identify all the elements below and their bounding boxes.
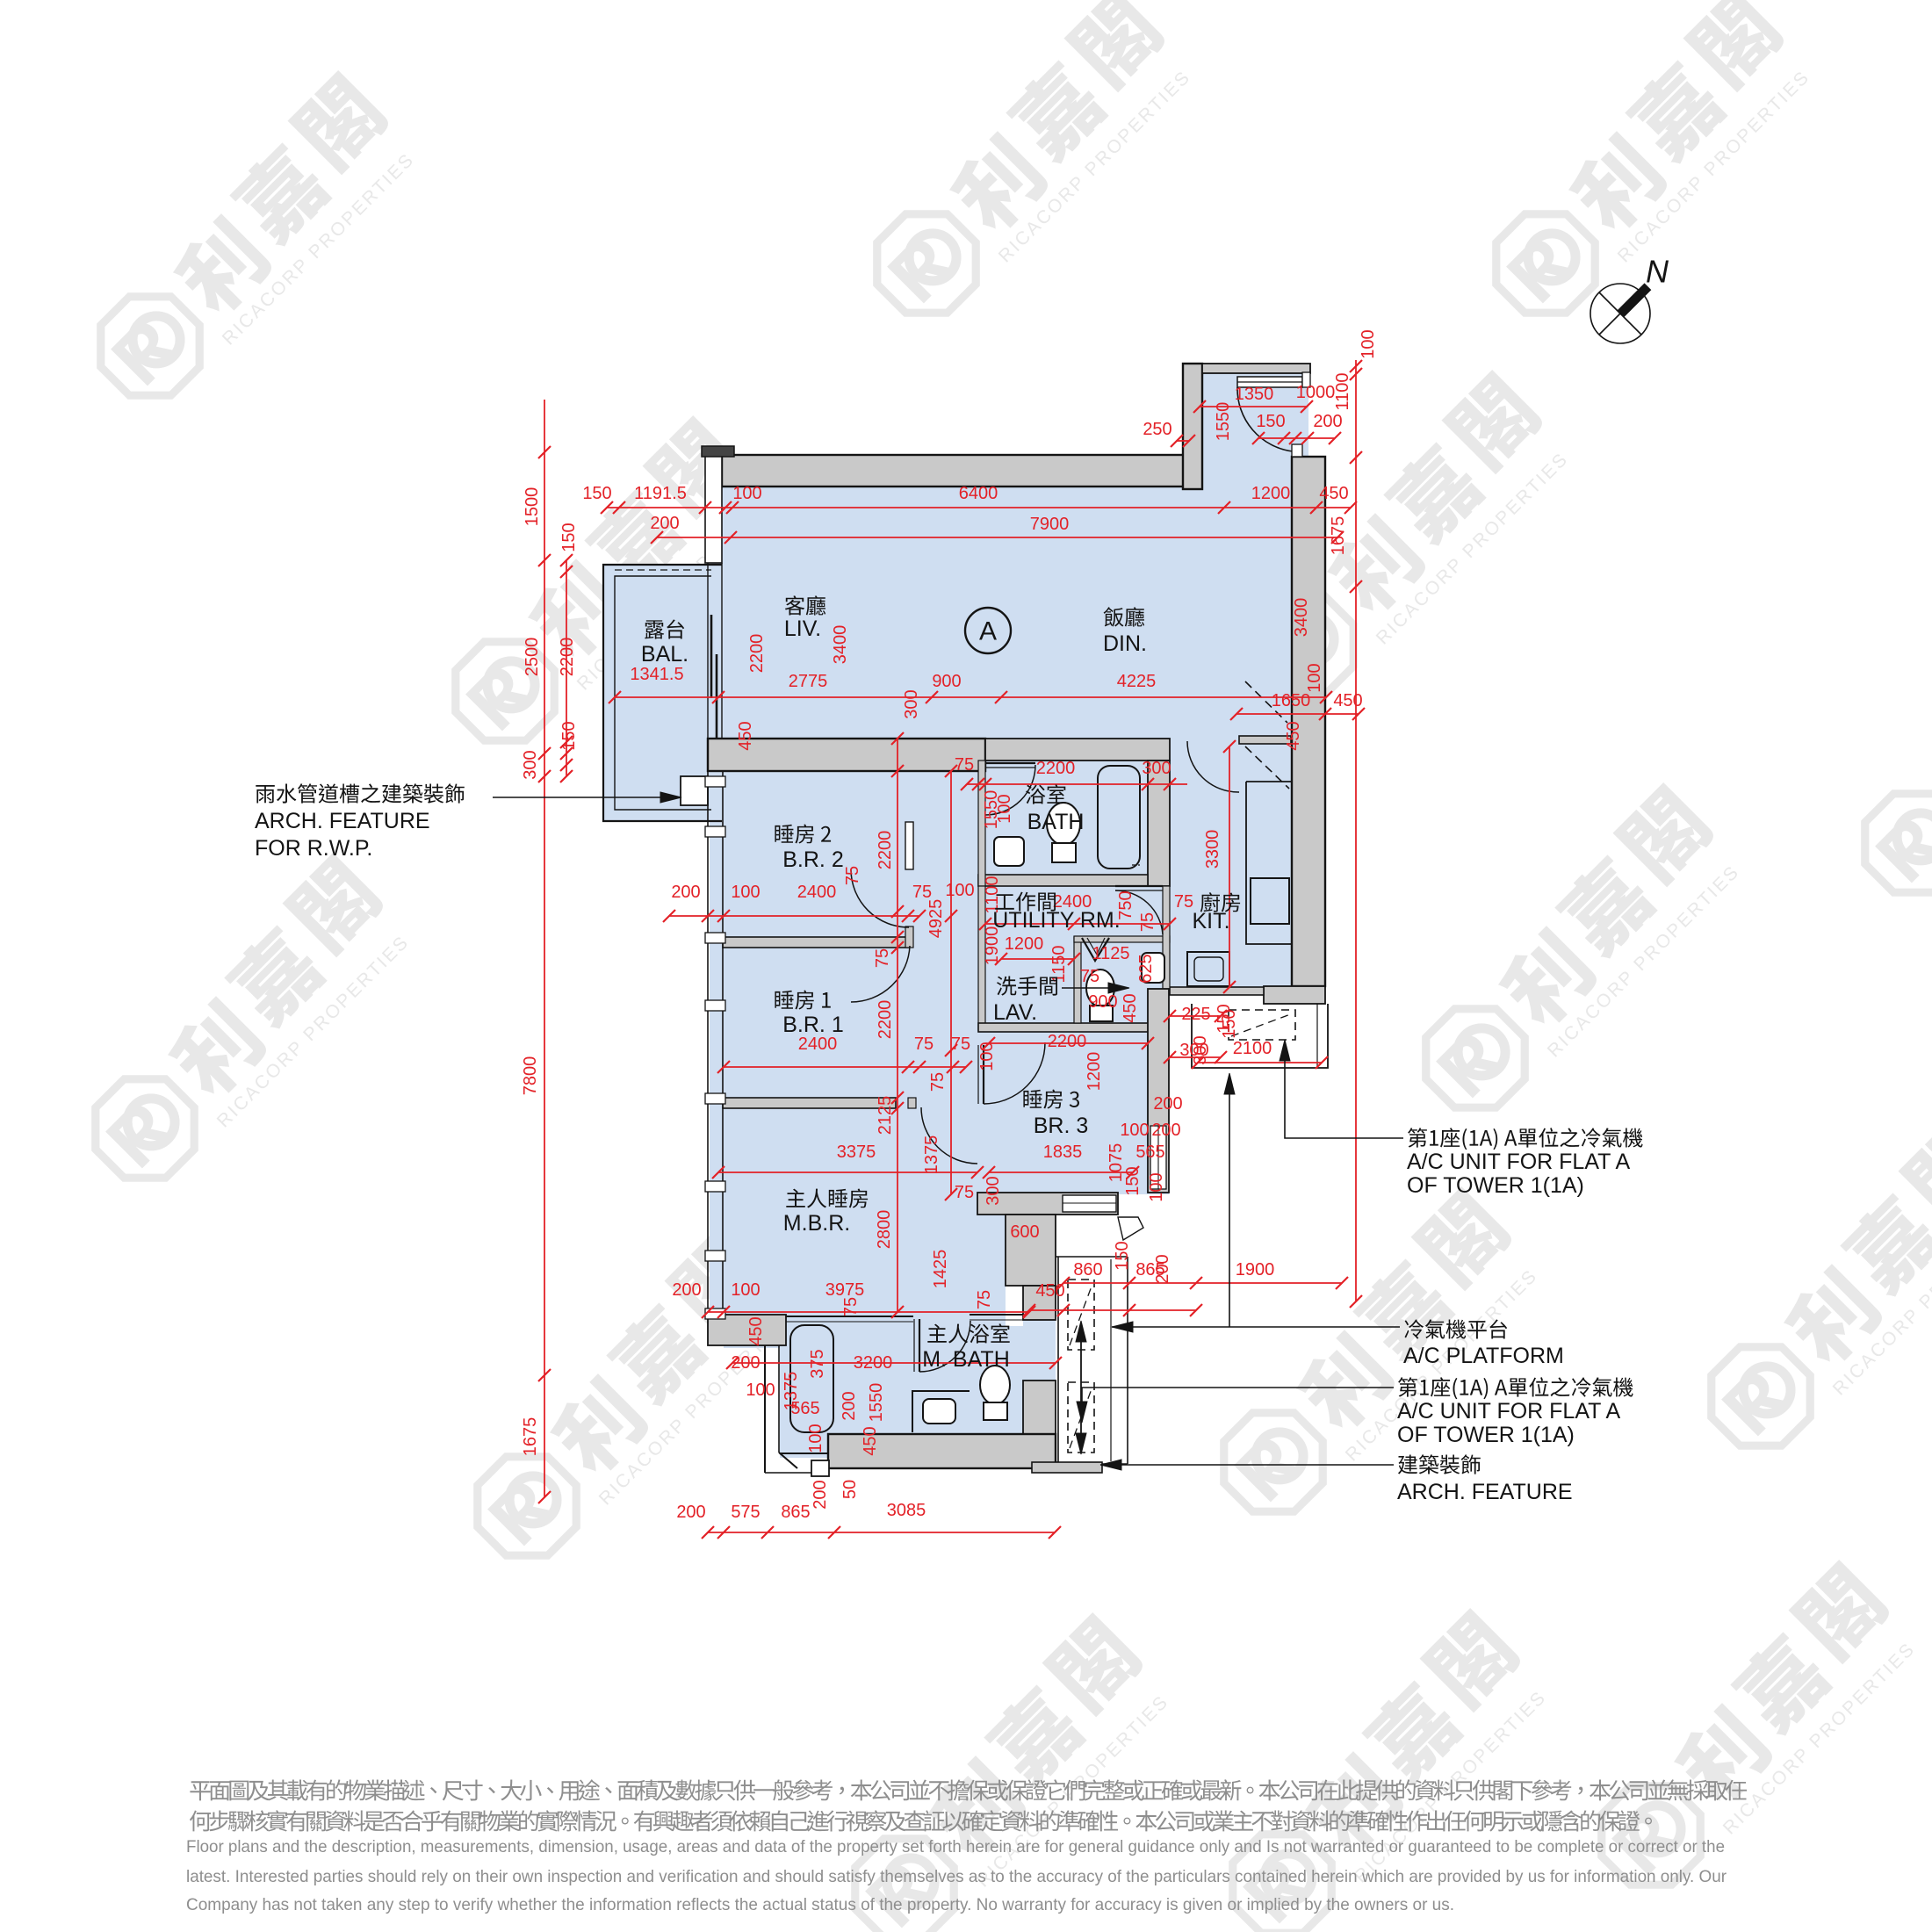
svg-text:2200: 2200 <box>747 634 767 674</box>
svg-text:75: 75 <box>928 1072 948 1092</box>
svg-text:200: 200 <box>811 1480 830 1509</box>
svg-text:450: 450 <box>1035 1281 1064 1301</box>
svg-text:450: 450 <box>1319 484 1348 503</box>
svg-text:100: 100 <box>945 881 974 900</box>
svg-text:4225: 4225 <box>1117 672 1157 691</box>
svg-text:150: 150 <box>1256 412 1285 431</box>
svg-text:M.B.R.: M.B.R. <box>783 1211 850 1236</box>
svg-text:7800: 7800 <box>521 1056 540 1096</box>
svg-text:1200: 1200 <box>1085 1052 1104 1092</box>
svg-text:1500: 1500 <box>523 487 542 527</box>
svg-text:ARCH. FEATURE: ARCH. FEATURE <box>1397 1480 1573 1504</box>
svg-text:BR. 3: BR. 3 <box>1034 1114 1089 1138</box>
svg-text:latest. Interested parties sho: latest. Interested parties should rely o… <box>186 1867 1727 1886</box>
svg-text:300: 300 <box>984 1176 1003 1205</box>
svg-text:200: 200 <box>1151 1121 1180 1140</box>
svg-text:KIT.: KIT. <box>1192 909 1229 934</box>
svg-text:1835: 1835 <box>1043 1143 1083 1162</box>
svg-text:BAL.: BAL. <box>641 642 688 667</box>
svg-text:450: 450 <box>1121 993 1140 1022</box>
svg-text:450: 450 <box>746 1316 766 1345</box>
svg-text:2200: 2200 <box>1048 1032 1087 1051</box>
svg-text:N: N <box>1646 254 1669 290</box>
svg-text:3400: 3400 <box>1292 598 1311 638</box>
svg-text:565: 565 <box>1135 1143 1164 1162</box>
svg-text:200: 200 <box>671 883 700 902</box>
svg-text:1191.5: 1191.5 <box>634 484 687 503</box>
svg-text:B.R. 2: B.R. 2 <box>782 847 843 872</box>
svg-text:450: 450 <box>1284 721 1303 750</box>
svg-text:DIN.: DIN. <box>1103 631 1147 656</box>
svg-text:100: 100 <box>732 484 761 503</box>
svg-text:75: 75 <box>914 1034 934 1054</box>
svg-text:2200: 2200 <box>558 638 577 677</box>
svg-text:900: 900 <box>1088 992 1117 1012</box>
svg-text:860: 860 <box>1073 1260 1102 1280</box>
svg-text:2200: 2200 <box>876 831 895 870</box>
svg-text:FOR R.W.P.: FOR R.W.P. <box>255 836 372 861</box>
svg-text:100: 100 <box>746 1381 775 1400</box>
svg-text:450: 450 <box>736 721 755 750</box>
svg-text:1000: 1000 <box>1296 383 1336 402</box>
svg-text:M. BATH: M. BATH <box>922 1347 1010 1372</box>
svg-text:150: 150 <box>1123 1166 1143 1195</box>
svg-text:300: 300 <box>521 750 540 779</box>
svg-text:75: 75 <box>951 1034 970 1054</box>
svg-text:1900: 1900 <box>1236 1260 1275 1280</box>
svg-text:100: 100 <box>1305 663 1324 692</box>
svg-text:200: 200 <box>1153 1254 1172 1283</box>
svg-text:75: 75 <box>873 948 892 968</box>
svg-text:3300: 3300 <box>1203 830 1222 869</box>
svg-text:50: 50 <box>840 1480 860 1499</box>
svg-text:450: 450 <box>861 1426 880 1455</box>
svg-text:1200: 1200 <box>1005 934 1044 954</box>
svg-text:2775: 2775 <box>789 672 828 691</box>
svg-text:LAV.: LAV. <box>993 1000 1037 1025</box>
svg-text:250: 250 <box>1143 420 1171 439</box>
svg-text:375: 375 <box>808 1349 827 1378</box>
svg-text:75: 75 <box>843 866 862 885</box>
svg-text:OF TOWER 1(1A): OF TOWER 1(1A) <box>1407 1173 1584 1198</box>
svg-text:865: 865 <box>781 1503 810 1522</box>
svg-text:300: 300 <box>902 689 921 718</box>
svg-text:100: 100 <box>806 1424 825 1453</box>
svg-text:100: 100 <box>1147 1172 1166 1201</box>
svg-text:1675: 1675 <box>521 1417 540 1457</box>
svg-text:A/C PLATFORM: A/C PLATFORM <box>1403 1344 1564 1368</box>
svg-text:150: 150 <box>559 721 579 750</box>
svg-text:A/C UNIT FOR FLAT A: A/C UNIT FOR FLAT A <box>1407 1150 1631 1174</box>
svg-text:1341.5: 1341.5 <box>630 665 683 684</box>
svg-text:2200: 2200 <box>1036 759 1076 778</box>
svg-text:200: 200 <box>1313 412 1342 431</box>
svg-text:2500: 2500 <box>523 638 542 677</box>
svg-text:1100: 1100 <box>1333 372 1352 410</box>
svg-text:200: 200 <box>650 514 679 533</box>
svg-text:LIV.: LIV. <box>784 616 821 641</box>
svg-text:75: 75 <box>1080 967 1099 986</box>
svg-text:225: 225 <box>1181 1005 1210 1024</box>
svg-text:150: 150 <box>1113 1241 1132 1270</box>
svg-text:150: 150 <box>1220 1009 1239 1038</box>
svg-text:OF TOWER 1(1A): OF TOWER 1(1A) <box>1397 1423 1575 1447</box>
svg-text:3400: 3400 <box>831 625 850 665</box>
svg-text:75: 75 <box>912 883 932 902</box>
svg-text:150: 150 <box>559 523 579 551</box>
svg-text:450: 450 <box>1333 691 1362 710</box>
svg-text:75: 75 <box>1138 912 1157 932</box>
svg-text:UTILITY RM.: UTILITY RM. <box>992 908 1120 933</box>
svg-text:2400: 2400 <box>797 883 837 902</box>
svg-text:B.R. 1: B.R. 1 <box>782 1013 843 1037</box>
svg-text:3085: 3085 <box>887 1501 926 1520</box>
svg-text:1550: 1550 <box>1214 402 1233 442</box>
svg-text:1200: 1200 <box>1251 484 1291 503</box>
svg-text:100: 100 <box>731 1280 760 1300</box>
svg-text:2200: 2200 <box>876 1000 895 1040</box>
svg-text:1350: 1350 <box>1235 385 1274 404</box>
svg-text:75: 75 <box>841 1297 861 1316</box>
svg-text:4925: 4925 <box>926 899 946 939</box>
svg-text:100: 100 <box>1120 1121 1149 1140</box>
svg-text:575: 575 <box>731 1503 760 1522</box>
svg-text:1425: 1425 <box>931 1250 950 1289</box>
svg-text:3975: 3975 <box>825 1280 865 1300</box>
svg-text:900: 900 <box>932 672 961 691</box>
svg-text:200: 200 <box>1153 1094 1182 1114</box>
svg-text:75: 75 <box>955 1183 974 1202</box>
svg-text:1550: 1550 <box>867 1383 886 1423</box>
svg-text:Company has not taken any step: Company has not taken any step to verify… <box>186 1895 1454 1914</box>
svg-text:BATH: BATH <box>1027 810 1085 834</box>
svg-text:150: 150 <box>582 484 611 503</box>
svg-text:100: 100 <box>995 794 1014 823</box>
svg-text:1375: 1375 <box>922 1135 941 1175</box>
svg-text:1125: 1125 <box>1092 944 1129 963</box>
svg-text:2125: 2125 <box>876 1096 895 1135</box>
svg-text:6400: 6400 <box>959 484 998 503</box>
svg-text:200: 200 <box>840 1391 859 1420</box>
svg-text:2100: 2100 <box>1233 1039 1272 1058</box>
svg-text:7900: 7900 <box>1030 515 1070 534</box>
svg-text:ARCH. FEATURE: ARCH. FEATURE <box>255 809 430 833</box>
svg-text:200: 200 <box>672 1280 701 1300</box>
svg-text:600: 600 <box>1010 1222 1039 1242</box>
svg-text:75: 75 <box>975 1290 994 1309</box>
svg-text:75: 75 <box>955 755 974 775</box>
svg-text:3375: 3375 <box>837 1143 876 1162</box>
svg-text:1650: 1650 <box>1272 691 1311 710</box>
svg-text:300: 300 <box>1142 759 1171 778</box>
svg-text:A: A <box>979 617 997 646</box>
svg-text:565: 565 <box>790 1399 819 1418</box>
svg-text:1675: 1675 <box>1329 516 1348 556</box>
svg-text:100: 100 <box>977 1042 997 1071</box>
svg-text:300: 300 <box>1179 1041 1208 1060</box>
svg-text:A/C UNIT FOR FLAT A: A/C UNIT FOR FLAT A <box>1397 1399 1621 1424</box>
svg-text:Floor plans and the descriptio: Floor plans and the description, measure… <box>186 1837 1725 1856</box>
svg-text:2800: 2800 <box>875 1210 894 1250</box>
svg-text:625: 625 <box>1136 954 1156 983</box>
svg-text:100: 100 <box>731 883 760 902</box>
svg-text:75: 75 <box>1174 892 1193 912</box>
svg-text:2400: 2400 <box>798 1034 838 1054</box>
svg-text:200: 200 <box>676 1503 705 1522</box>
svg-text:100: 100 <box>1359 329 1378 358</box>
